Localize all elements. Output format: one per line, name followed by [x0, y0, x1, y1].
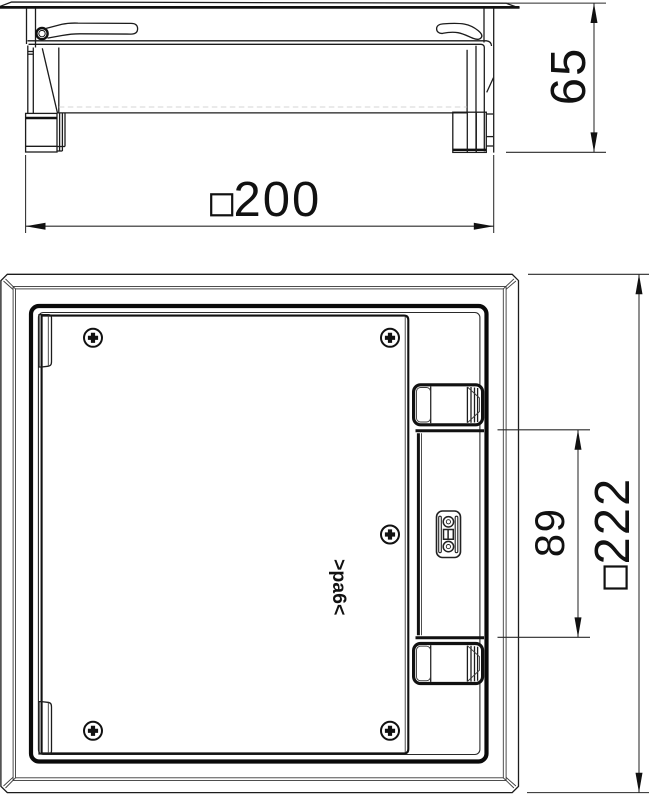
svg-text:65: 65 — [542, 47, 596, 106]
svg-text:200: 200 — [234, 173, 322, 227]
svg-text:>pa6<: >pa6< — [328, 559, 350, 615]
svg-text:222: 222 — [586, 477, 640, 565]
svg-text:89: 89 — [526, 507, 573, 557]
